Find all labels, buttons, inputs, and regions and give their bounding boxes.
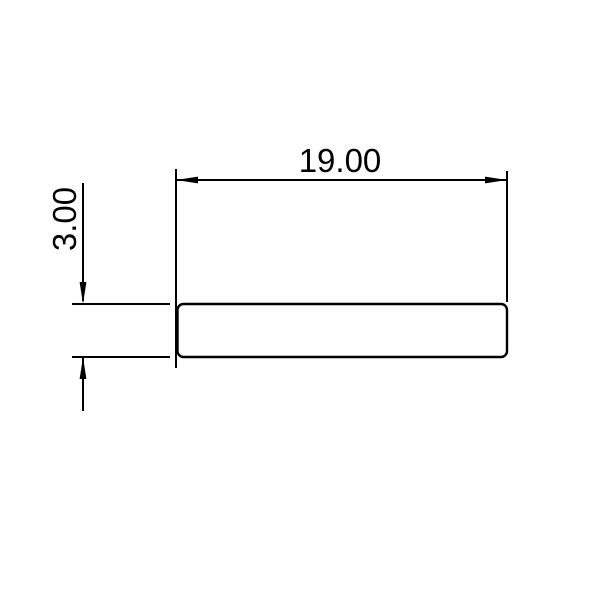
technical-drawing: 19.00 3.00 <box>0 0 600 600</box>
width-dim-label: 19.00 <box>299 142 382 179</box>
thickness-dim-label: 3.00 <box>46 187 83 251</box>
drawing-background <box>0 0 600 600</box>
drawing-canvas: 19.00 3.00 <box>0 0 600 600</box>
profile-outline <box>178 304 508 357</box>
